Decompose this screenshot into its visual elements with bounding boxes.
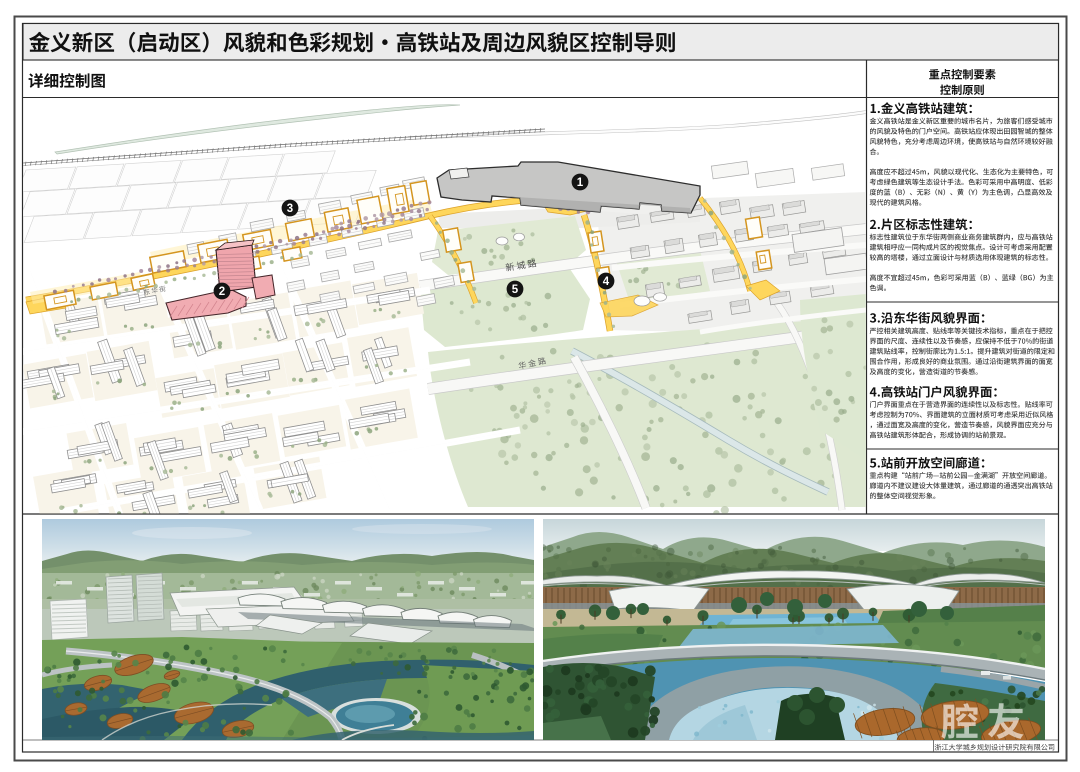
svg-text:1: 1 (577, 177, 584, 189)
svg-text:3: 3 (287, 203, 293, 215)
svg-text:5: 5 (512, 284, 519, 296)
svg-text:2: 2 (219, 286, 225, 298)
svg-text:4: 4 (603, 276, 610, 288)
